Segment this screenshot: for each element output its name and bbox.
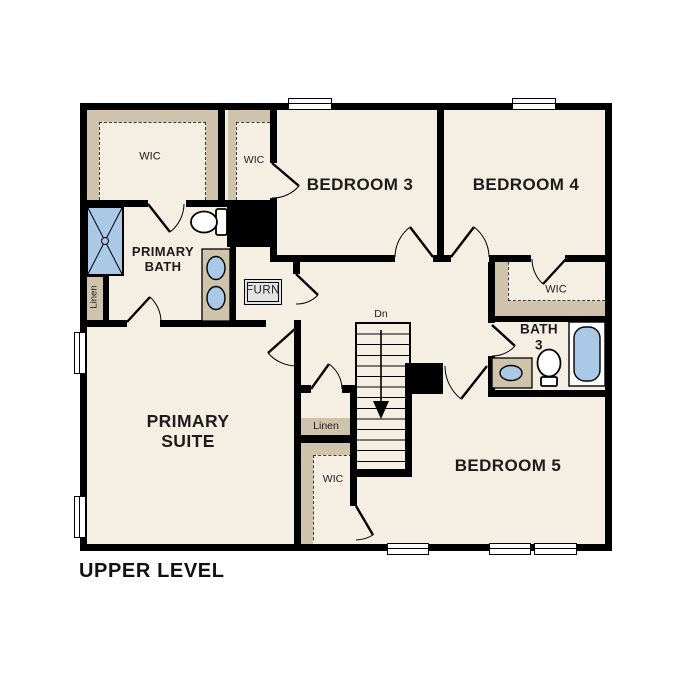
wall-segment	[80, 320, 127, 327]
wall-segment	[565, 255, 612, 262]
window	[387, 543, 429, 555]
wall-segment	[230, 247, 236, 327]
wall-segment	[186, 200, 277, 207]
window	[489, 543, 531, 555]
staircase	[355, 322, 411, 471]
wall-segment	[293, 262, 300, 274]
primary-suite-label: PRIMARY SUITE	[147, 411, 230, 451]
wall-segment	[350, 393, 357, 506]
furnace-label: FURN	[246, 284, 280, 297]
bath3-line2: 3	[520, 337, 558, 353]
wall-segment	[437, 103, 444, 262]
primary-suite-line1: PRIMARY	[147, 411, 230, 431]
wic-primary-label: WIC	[139, 151, 160, 164]
linen-hall-label: Linen	[90, 285, 101, 308]
window	[288, 98, 332, 110]
wall-segment	[605, 103, 612, 551]
bath3-label: BATH 3	[520, 321, 558, 352]
primary-bath-line1: PRIMARY	[132, 245, 194, 260]
primary-bath-label: PRIMARY BATH	[132, 245, 194, 275]
linen-center-label: Linen	[313, 420, 339, 432]
wall-segment	[272, 255, 395, 262]
floor-plan: WIC WIC BEDROOM 3 BEDROOM 4 PRIMARY BATH…	[0, 0, 687, 687]
wall-segment	[342, 385, 357, 393]
primary-suite-line2: SUITE	[147, 431, 230, 451]
wall-segment	[350, 470, 412, 477]
stairs-dn-label: Dn	[374, 308, 387, 320]
wall-segment	[294, 320, 301, 544]
bedroom5-label: BEDROOM 5	[455, 456, 562, 476]
wall-segment	[294, 385, 311, 393]
bath3-line1: BATH	[520, 321, 558, 337]
wic-center-label: WIC	[323, 473, 343, 485]
window	[512, 98, 556, 110]
window	[74, 496, 86, 538]
wall-segment	[80, 103, 87, 551]
window	[534, 543, 577, 555]
wall-segment	[270, 103, 277, 163]
wic-bedroom3-label: WIC	[244, 154, 264, 166]
wall-segment	[488, 356, 495, 394]
wall-segment	[405, 363, 412, 477]
wall-segment	[488, 390, 612, 397]
bedroom3-label: BEDROOM 3	[307, 175, 414, 195]
bedroom4-label: BEDROOM 4	[473, 175, 580, 195]
wall-segment	[433, 255, 451, 262]
wall-segment	[103, 277, 109, 320]
wall-segment	[80, 544, 612, 551]
window	[74, 332, 86, 374]
wall-segment	[489, 255, 531, 262]
wall-segment	[160, 320, 266, 327]
wall-segment	[488, 262, 495, 323]
wall-segment	[270, 198, 277, 262]
wall-segment	[80, 200, 148, 207]
primary-bath-line2: BATH	[132, 260, 194, 275]
wall-segment	[294, 435, 357, 443]
plan-title: UPPER LEVEL	[79, 560, 225, 583]
wall-segment	[218, 103, 225, 207]
wic-bedroom4-label: WIC	[545, 284, 566, 297]
